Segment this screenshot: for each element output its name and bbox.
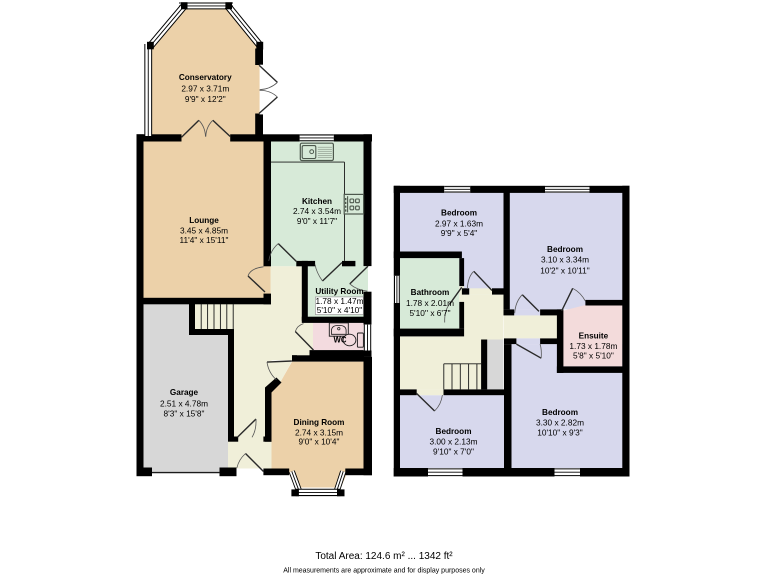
svg-text:Utility Room: Utility Room (315, 287, 363, 296)
svg-text:Conservatory: Conservatory (179, 73, 232, 82)
svg-text:2.51 x 4.78m: 2.51 x 4.78m (160, 398, 208, 408)
svg-text:11'4" x 15'11": 11'4" x 15'11" (180, 235, 229, 245)
svg-text:9'9'' x 5'4": 9'9'' x 5'4" (441, 228, 478, 238)
svg-text:3.30 x 2.82m: 3.30 x 2.82m (536, 417, 584, 427)
svg-text:2.97 x 3.71m: 2.97 x 3.71m (181, 83, 229, 93)
svg-text:Garage: Garage (170, 388, 199, 397)
svg-text:Bedroom: Bedroom (547, 245, 583, 254)
svg-text:9'0" x 10'4": 9'0" x 10'4" (299, 437, 340, 447)
svg-text:Lounge: Lounge (189, 216, 219, 225)
svg-text:3.00 x 2.13m: 3.00 x 2.13m (430, 437, 478, 447)
svg-text:Bedroom: Bedroom (542, 408, 578, 417)
svg-text:2.74 x 3.54m: 2.74 x 3.54m (293, 206, 341, 216)
svg-text:Dining Room: Dining Room (294, 418, 345, 427)
svg-text:2.97 x 1.63m: 2.97 x 1.63m (435, 218, 483, 228)
svg-text:Ensuite: Ensuite (579, 332, 609, 341)
svg-text:5'10" x 4'10": 5'10" x 4'10" (317, 305, 363, 315)
svg-text:Bedroom: Bedroom (436, 427, 472, 436)
svg-text:WC: WC (334, 335, 347, 344)
svg-text:10'2" x 10'11": 10'2" x 10'11" (540, 265, 590, 275)
svg-text:1.78 x 2.01m: 1.78 x 2.01m (406, 298, 454, 308)
svg-text:9'0" x 11'7": 9'0" x 11'7" (297, 216, 337, 226)
svg-text:8'3" x 15'8": 8'3" x 15'8" (164, 409, 205, 419)
svg-text:Total Area: 124.6 m² ... 1342: Total Area: 124.6 m² ... 1342 ft² (315, 551, 453, 562)
svg-text:Bathroom: Bathroom (411, 288, 450, 297)
svg-text:9'9" x 12'2": 9'9" x 12'2" (185, 94, 226, 104)
svg-text:9'10" x 7'0": 9'10" x 7'0" (433, 447, 474, 457)
svg-text:Kitchen: Kitchen (302, 197, 332, 206)
svg-text:10'10" x 9'3": 10'10" x 9'3" (537, 427, 583, 437)
svg-text:3.10 x 3.34m: 3.10 x 3.34m (541, 255, 589, 265)
svg-text:5'10'' x 6'7": 5'10'' x 6'7" (409, 308, 450, 318)
svg-text:5'8" x 5'10": 5'8" x 5'10" (573, 350, 614, 360)
svg-text:All measurements are approxima: All measurements are approximate and for… (283, 568, 485, 575)
svg-text:Bedroom: Bedroom (441, 209, 477, 218)
